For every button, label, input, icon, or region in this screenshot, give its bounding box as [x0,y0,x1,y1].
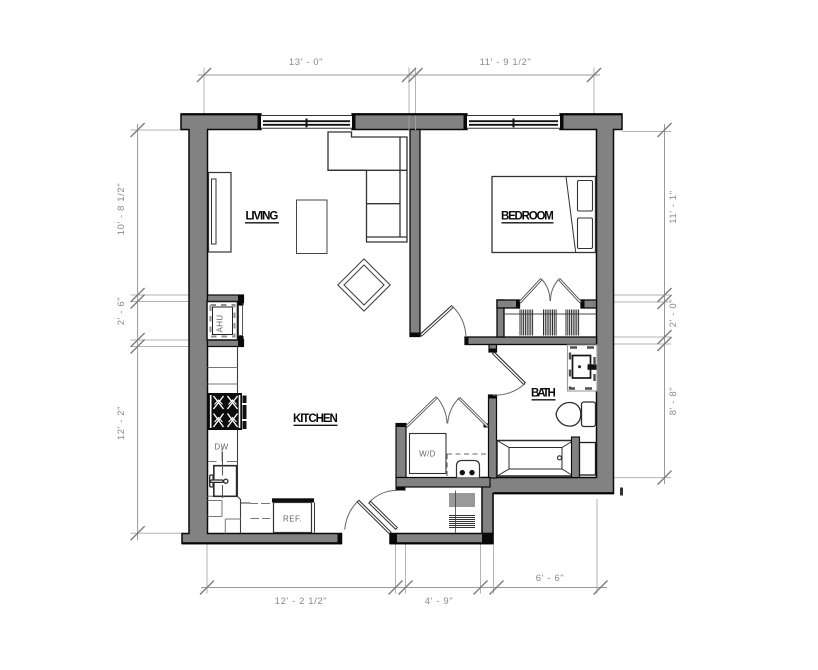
svg-text:10' - 8 1/2": 10' - 8 1/2" [116,183,127,236]
svg-text:W/D: W/D [419,450,436,459]
svg-text:11' - 1": 11' - 1" [668,190,679,224]
svg-text:8' - 8": 8' - 8" [668,387,679,415]
svg-text:BEDROOM: BEDROOM [501,211,554,223]
svg-text:2' - 6": 2' - 6" [116,297,127,325]
svg-text:4' - 9": 4' - 9" [425,596,453,607]
svg-text:KITCHEN: KITCHEN [293,413,338,425]
svg-text:2' - 0": 2' - 0" [668,299,679,327]
svg-text:REF.: REF. [283,515,302,524]
svg-text:6' - 6": 6' - 6" [536,573,564,584]
svg-text:13' - 0": 13' - 0" [289,57,323,68]
svg-text:AHU: AHU [216,314,225,332]
svg-text:12' - 2 1/2": 12' - 2 1/2" [275,596,328,607]
svg-text:LIVING: LIVING [246,211,279,223]
svg-text:DW: DW [214,443,228,452]
svg-text:11' - 9 1/2": 11' - 9 1/2" [480,57,532,68]
svg-text:BATH: BATH [531,388,556,400]
svg-text:12' - 2": 12' - 2" [116,406,127,440]
